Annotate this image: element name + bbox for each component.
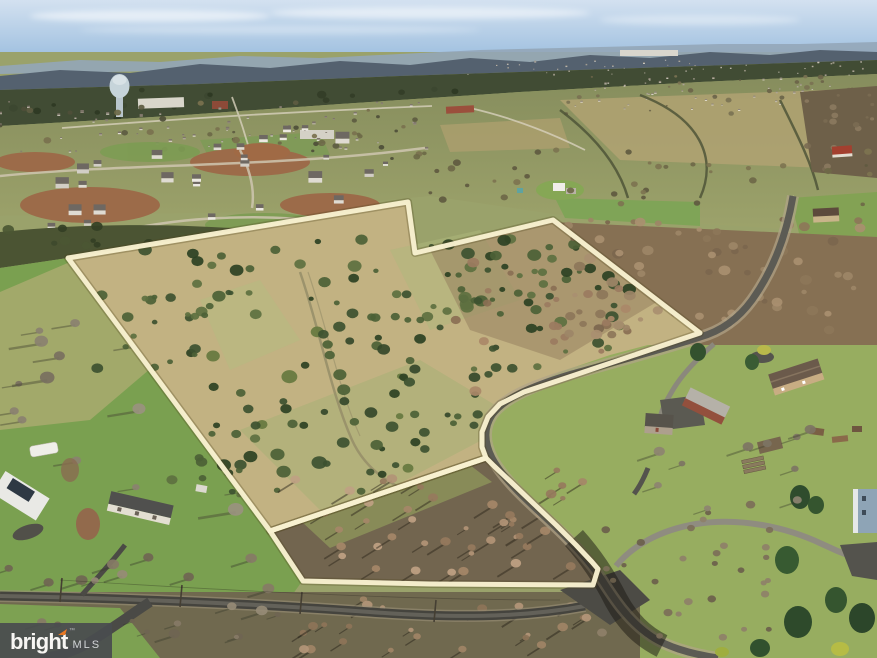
aerial-scene bbox=[0, 0, 877, 658]
red-roof-house bbox=[832, 145, 853, 157]
bright-green-field bbox=[555, 198, 700, 226]
watermark-trademark: ™ bbox=[69, 628, 75, 634]
brightmls-watermark: bright ™ MLS bbox=[0, 623, 112, 658]
right-edge-woods bbox=[800, 86, 877, 178]
gray-roof-house bbox=[644, 413, 673, 435]
watermark-suffix-text: MLS bbox=[73, 640, 102, 653]
blue-house bbox=[853, 489, 877, 533]
watermark-brand-text: bright bbox=[10, 631, 68, 653]
tan-house-upper-right bbox=[813, 207, 840, 222]
aerial-property-photo: bright ™ MLS bbox=[0, 0, 877, 658]
